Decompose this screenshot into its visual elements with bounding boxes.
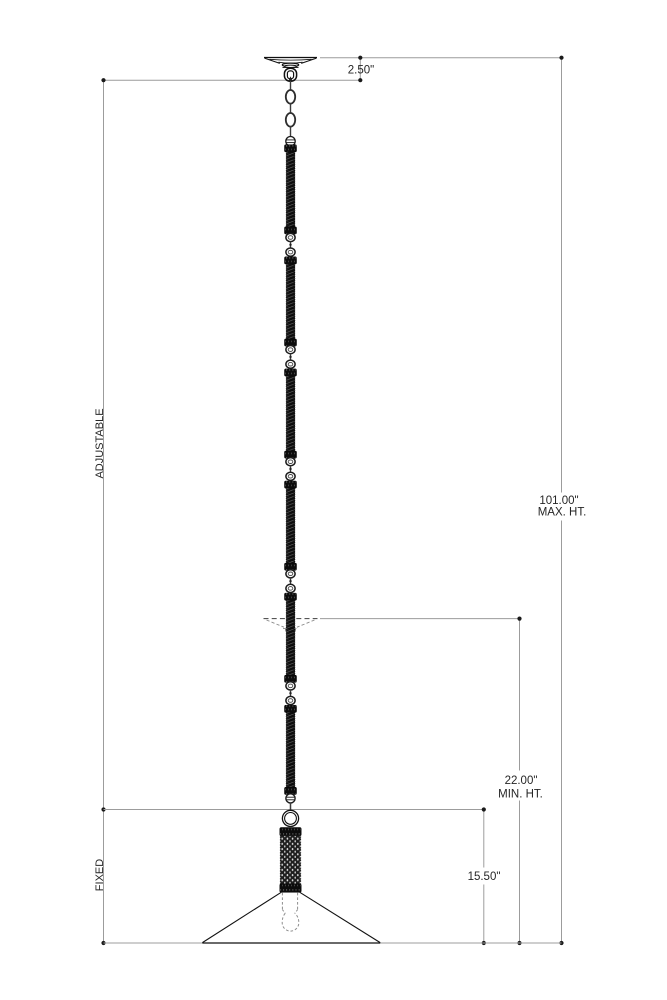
svg-text:22.00": 22.00" (505, 775, 538, 787)
svg-text:ADJUSTABLE: ADJUSTABLE (94, 408, 106, 478)
svg-text:MAX. HT.: MAX. HT. (538, 507, 587, 519)
svg-text:MIN. HT.: MIN. HT. (498, 788, 543, 800)
svg-text:FIXED: FIXED (94, 859, 106, 891)
svg-text:101.00": 101.00" (539, 495, 578, 507)
svg-text:15.50": 15.50" (468, 871, 501, 883)
svg-text:2.50": 2.50" (348, 64, 374, 76)
